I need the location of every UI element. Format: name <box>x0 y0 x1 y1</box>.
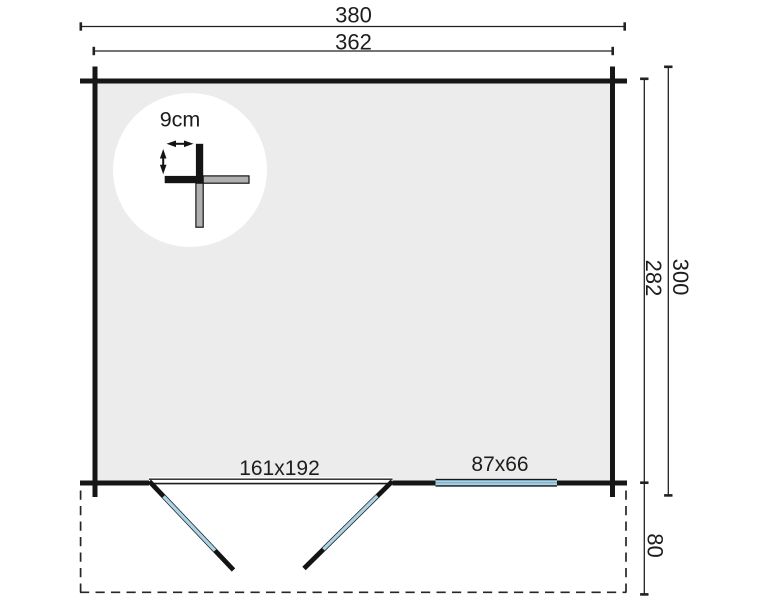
svg-text:282: 282 <box>641 260 666 297</box>
svg-text:161x192: 161x192 <box>239 457 320 480</box>
svg-text:300: 300 <box>668 259 693 296</box>
svg-text:9cm: 9cm <box>160 107 201 131</box>
svg-text:380: 380 <box>335 3 372 28</box>
svg-text:362: 362 <box>335 30 372 55</box>
svg-text:87x66: 87x66 <box>471 453 528 476</box>
svg-text:80: 80 <box>643 533 668 557</box>
